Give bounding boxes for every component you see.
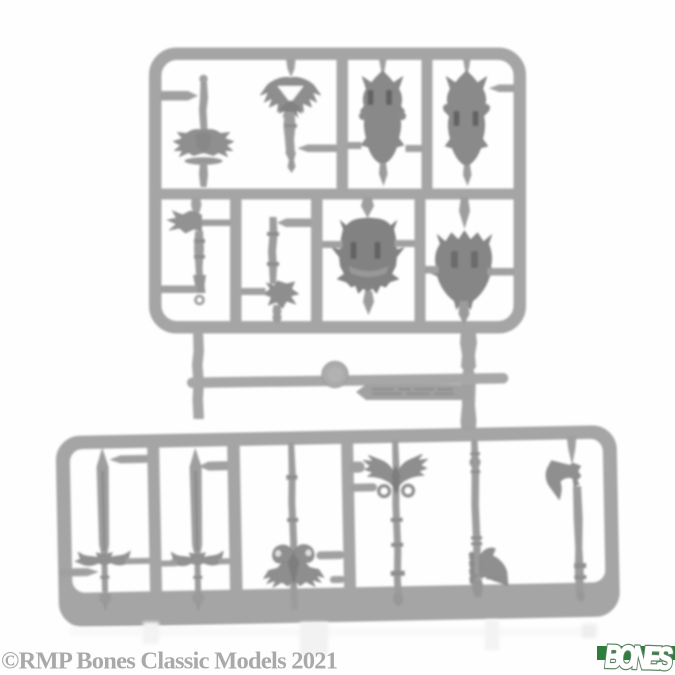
svg-text:©RMP Bones Classic Models 2021: ©RMP Bones Classic Models 2021 [1,648,338,675]
svg-text:BONES: BONES [603,638,675,675]
